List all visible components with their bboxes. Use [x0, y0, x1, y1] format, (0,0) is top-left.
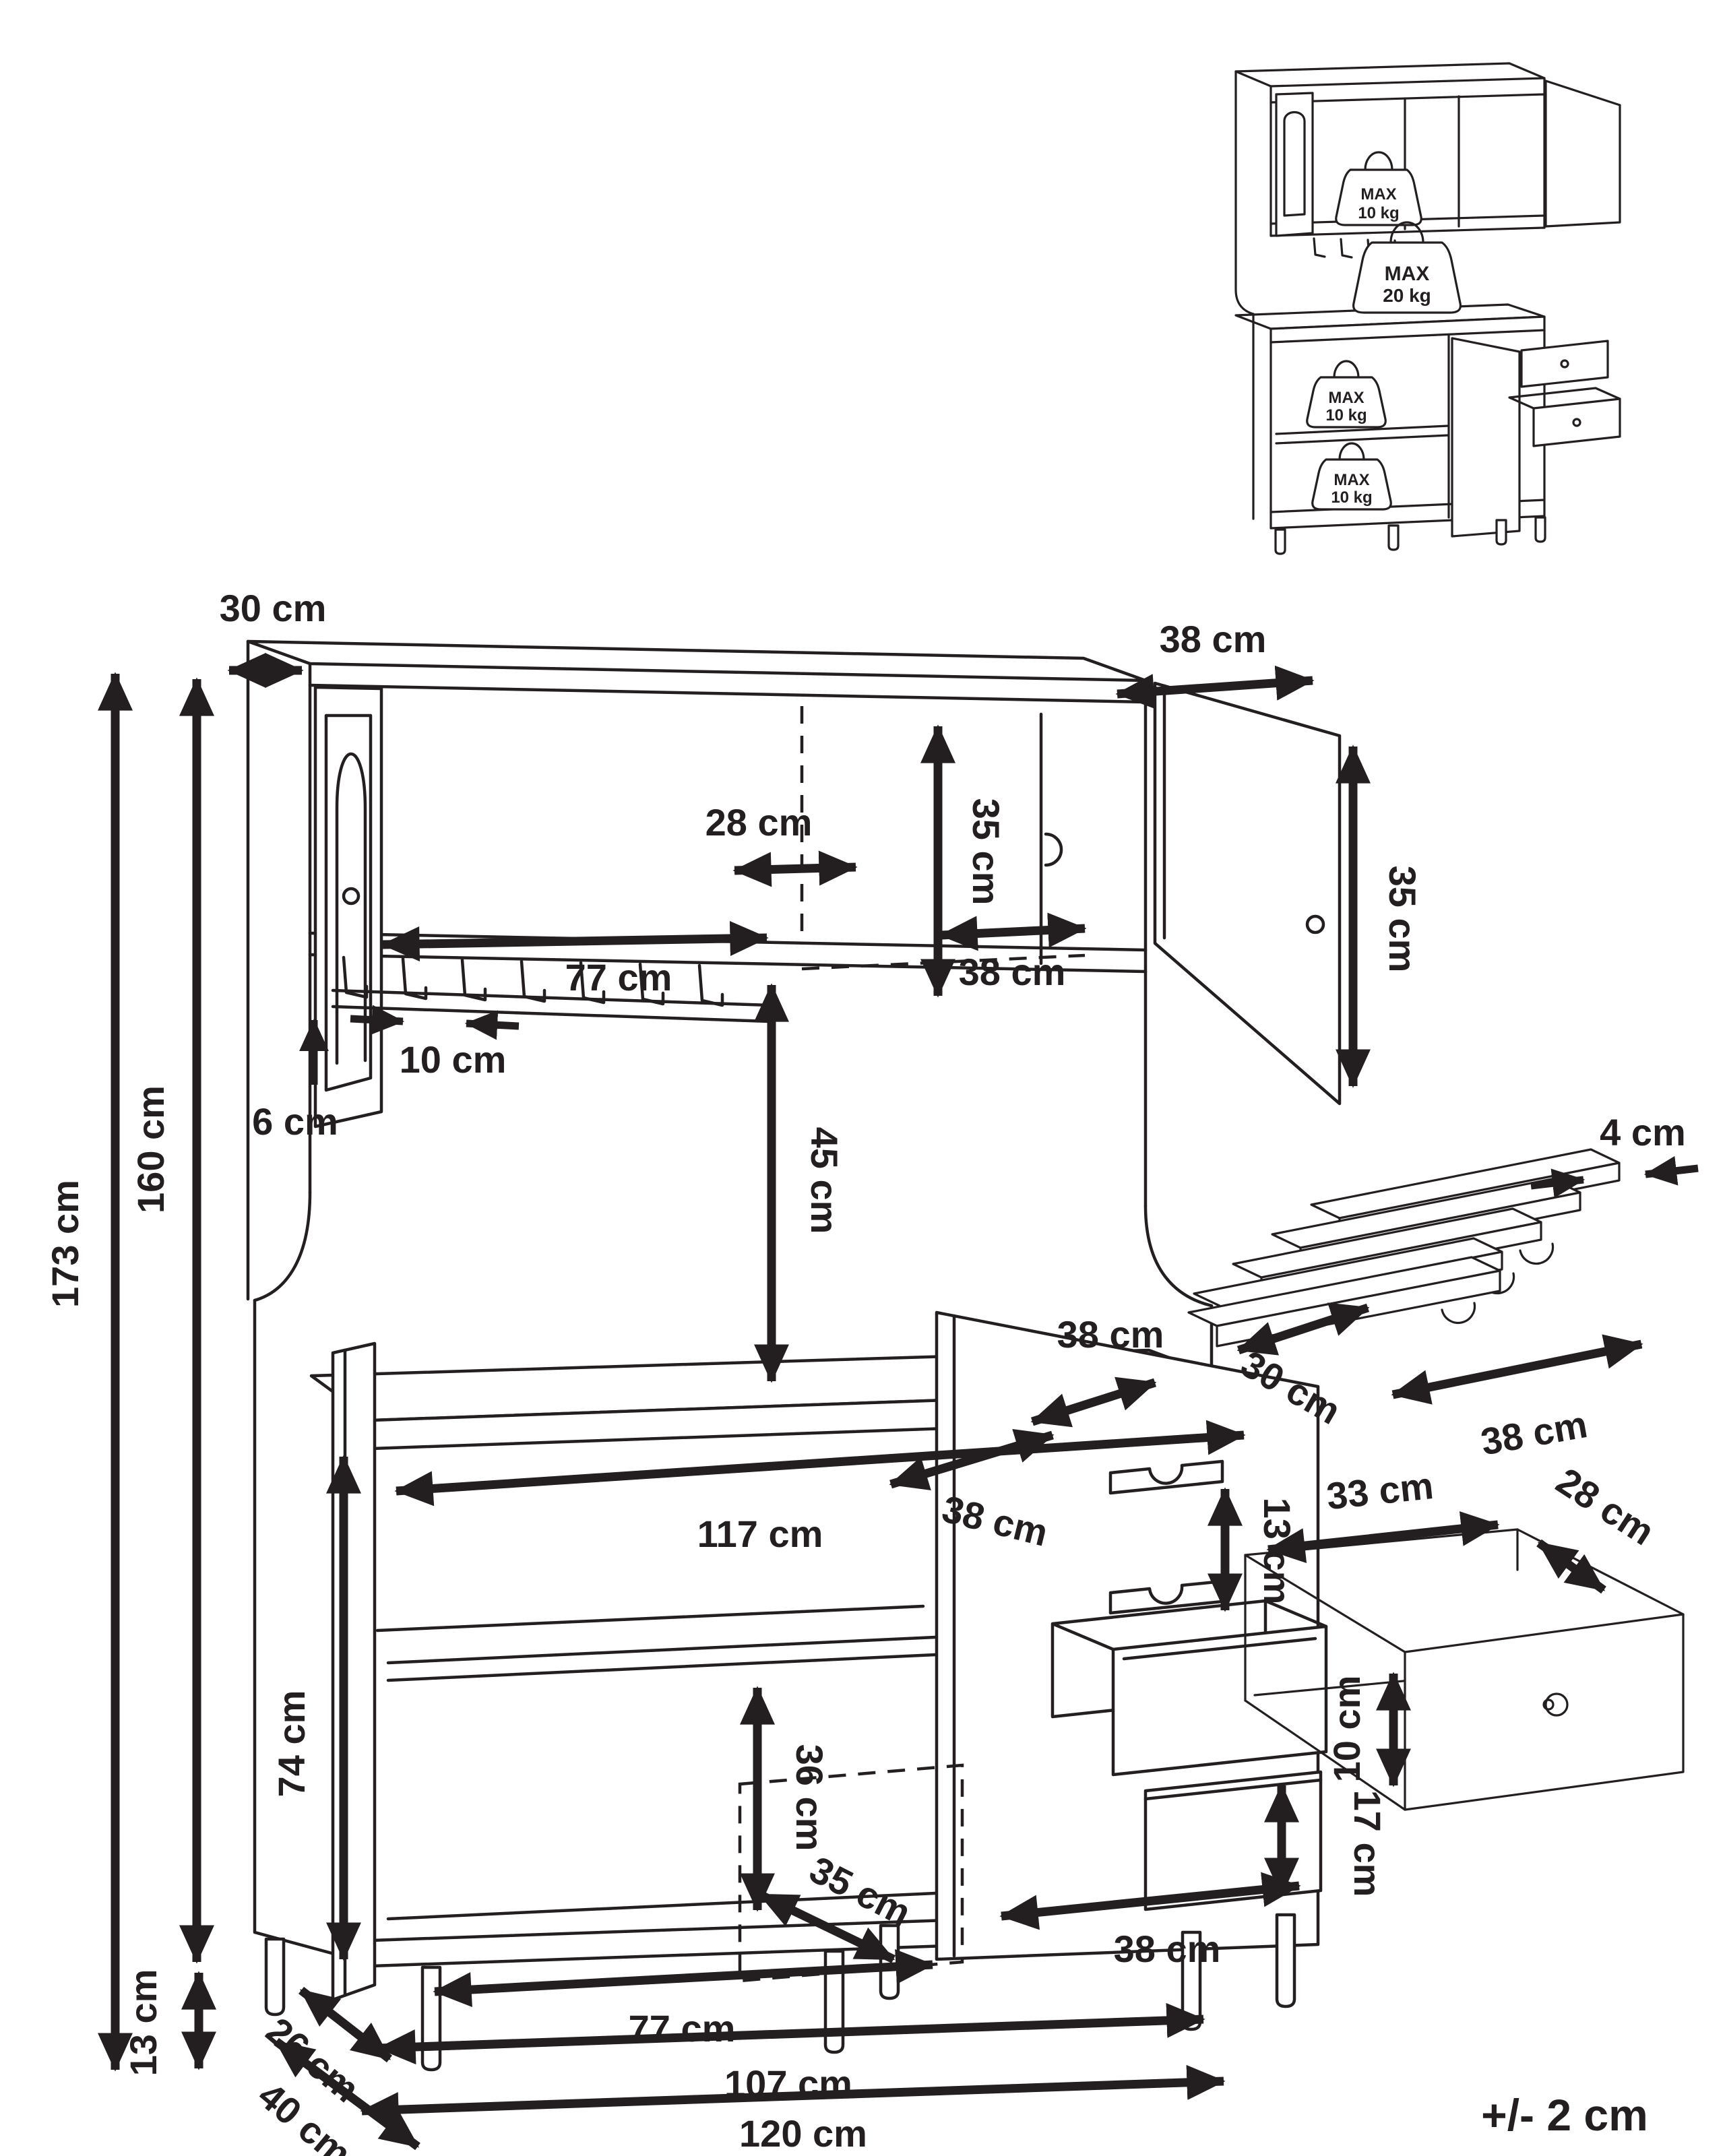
- dim-top-door-height: 35 cm: [1353, 747, 1424, 1086]
- max-weight-icon-bottom: MAX 10 kg: [1313, 443, 1391, 509]
- max-weight-icon-lower: MAX 10 kg: [1307, 361, 1386, 427]
- dim-label: 4 cm: [1600, 1111, 1686, 1153]
- lower-left-door-open: [333, 1343, 375, 2000]
- dim-label: 33 cm: [1325, 1464, 1436, 1517]
- dim-label: 38 cm: [1160, 618, 1267, 660]
- wine-glass-rack: [333, 957, 770, 1021]
- dim-label: 10 cm: [400, 1038, 507, 1081]
- dim-label: 38 cm: [1114, 1928, 1221, 1970]
- dim-label: 36 cm: [788, 1744, 831, 1851]
- dim-glass-rack-width: 77 cm: [383, 938, 767, 998]
- dim-hutch-height: 160 cm: [129, 679, 197, 1962]
- dim-label: 28 cm: [705, 801, 813, 844]
- max-load-inset: MAX 10 kg MAX 20 kg MAX 10 kg MAX 10 kg: [1236, 63, 1620, 554]
- dim-label: 77 cm: [565, 956, 672, 998]
- furniture-dimension-diagram: 30 cm 173 cm 160 cm 38 cm 35 cm 35 cm 28…: [0, 0, 1725, 2156]
- max-label: MAX: [1328, 389, 1364, 407]
- dim-label: 160 cm: [129, 1085, 172, 1213]
- main-cabinet-drawing: [248, 641, 1340, 2070]
- dim-label: 117 cm: [697, 1513, 823, 1555]
- dim-drawer-height: 10 cm: [1325, 1674, 1393, 1785]
- dim-label: 173 cm: [44, 1180, 86, 1308]
- dim-label: 28 cm: [1549, 1459, 1662, 1553]
- dim-leg-height: 13 cm: [122, 1969, 199, 2076]
- hutch-glass-door: [315, 687, 381, 1127]
- kg-label: 10 kg: [1325, 406, 1367, 424]
- dim-label: 35 cm: [965, 798, 1007, 906]
- kg-label: 10 kg: [1358, 204, 1399, 222]
- glass-door-knob: [344, 889, 358, 903]
- max-label: MAX: [1334, 471, 1369, 489]
- tolerance-note: +/- 2 cm: [1481, 2090, 1648, 2140]
- dim-label: 6 cm: [252, 1100, 338, 1143]
- dim-label: 38 cm: [959, 951, 1066, 993]
- max-label: MAX: [1360, 185, 1396, 203]
- dim-top-inner-width: 28 cm: [705, 801, 856, 870]
- kg-label: 20 kg: [1383, 285, 1431, 306]
- dim-rack-width: 38 cm: [1393, 1344, 1641, 1463]
- sliding-door-finger-hole: [1046, 834, 1061, 865]
- dim-open-shelf-height: 45 cm: [772, 985, 846, 1381]
- dim-label: 13 cm: [122, 1969, 164, 2076]
- dim-label: 17 cm: [1346, 1790, 1389, 1897]
- dim-top-middle-door-width: 38 cm: [941, 928, 1085, 993]
- dim-total-height: 173 cm: [44, 674, 115, 2070]
- diagram-canvas: 30 cm 173 cm 160 cm 38 cm 35 cm 35 cm 28…: [0, 0, 1725, 2156]
- max-weight-icon-top: MAX 10 kg: [1336, 152, 1421, 225]
- dim-top-depth: 30 cm: [220, 587, 327, 670]
- dim-label: 74 cm: [270, 1690, 313, 1798]
- dim-drawer-depth: 28 cm: [1539, 1459, 1662, 1590]
- dim-label: 35 cm: [1381, 866, 1424, 973]
- dim-label: 45 cm: [803, 1127, 846, 1234]
- kg-label: 10 kg: [1331, 488, 1372, 507]
- dim-total-width: 120 cm: [362, 2081, 1224, 2155]
- dim-label: 120 cm: [739, 2112, 867, 2155]
- hutch-right-door-open: [1155, 683, 1340, 1104]
- dim-label: 10 cm: [1325, 1676, 1368, 1783]
- drawer-front-panel: [1405, 1614, 1683, 1810]
- dim-label: 38 cm: [1478, 1403, 1590, 1463]
- dim-label: 30 cm: [220, 587, 327, 629]
- max-label: MAX: [1385, 263, 1430, 285]
- dim-label: 38 cm: [1057, 1313, 1164, 1356]
- max-weight-icon-middle: MAX 20 kg: [1354, 222, 1461, 313]
- hutch-door-knob: [1307, 916, 1323, 932]
